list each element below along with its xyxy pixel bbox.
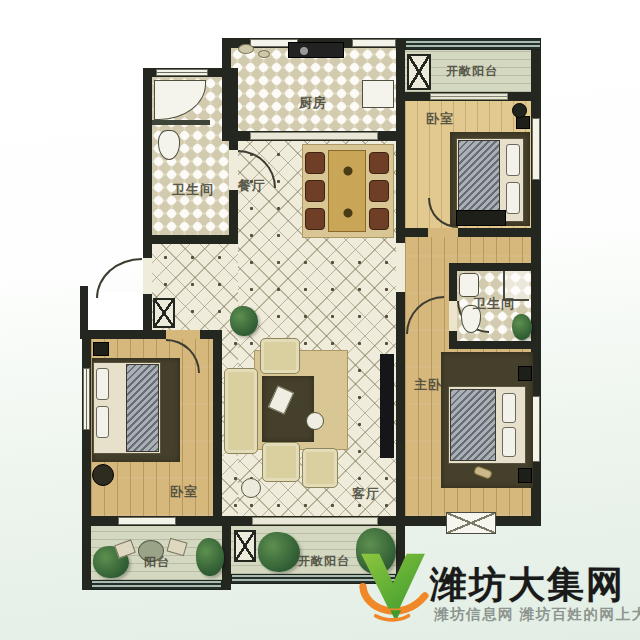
door-opening xyxy=(428,228,458,237)
sofa xyxy=(224,368,258,454)
kitchen-sliding-door xyxy=(250,132,378,140)
bed-duvet xyxy=(450,389,496,461)
label-kitchen: 厨房 xyxy=(299,94,327,112)
dining-chair xyxy=(369,180,389,202)
wall xyxy=(80,286,88,334)
dining-chair xyxy=(305,152,325,174)
wall xyxy=(213,330,222,516)
site-name: 潍坊大集网 xyxy=(430,560,625,610)
wardrobe xyxy=(456,210,506,226)
dining-chair xyxy=(369,152,389,174)
coffee-table-rug xyxy=(262,376,314,442)
entry-door-arc xyxy=(96,258,142,298)
dining-chair xyxy=(305,180,325,202)
window xyxy=(532,396,540,462)
window xyxy=(156,69,208,76)
kitchen-item xyxy=(258,50,270,58)
armchair xyxy=(302,448,338,488)
living-balcony-sliding-door xyxy=(252,517,378,525)
wall xyxy=(143,68,152,244)
wall xyxy=(396,38,405,243)
nightstand xyxy=(93,342,109,356)
dining-chair xyxy=(369,208,389,230)
armchair xyxy=(260,338,300,374)
label-open-balcony-top: 开敞阳台 xyxy=(446,63,498,80)
stove xyxy=(288,42,344,58)
window xyxy=(352,39,396,47)
pillow xyxy=(506,144,520,176)
floorplan-image: 厨房 开敞阳台 卧室 卫生间 餐厅 卫生间 主卧 卧室 客厅 阳台 开敞阳台 潍… xyxy=(0,0,640,640)
site-tagline: 潍坊信息网 潍坊百姓的网上大集 xyxy=(434,605,640,624)
wall xyxy=(222,38,231,141)
wall xyxy=(449,341,531,349)
shaft xyxy=(153,298,175,328)
label-bath-right: 卫生间 xyxy=(473,295,515,313)
wall xyxy=(80,330,222,339)
wall xyxy=(449,263,531,271)
nightstand xyxy=(518,468,532,483)
door-opening xyxy=(449,301,457,331)
shaft xyxy=(234,530,256,562)
balcony-railing xyxy=(91,580,222,590)
doorway-opening xyxy=(396,243,405,292)
label-bedroom-bottom-left: 卧室 xyxy=(170,483,198,501)
sink xyxy=(459,273,479,297)
pillow xyxy=(96,406,109,438)
label-bath-left: 卫生间 xyxy=(172,181,214,199)
window xyxy=(532,118,540,180)
wall xyxy=(449,331,457,341)
plant xyxy=(196,538,224,576)
bedroom-balcony-window xyxy=(118,517,176,525)
tv-cabinet xyxy=(380,354,394,458)
bed-duvet xyxy=(458,140,500,220)
site-logo xyxy=(352,552,434,634)
bath-partition xyxy=(152,120,210,125)
label-bedroom-top-right: 卧室 xyxy=(426,110,454,128)
entry-door-opening xyxy=(143,258,152,294)
fridge xyxy=(362,80,394,108)
shaft xyxy=(407,54,431,90)
wall xyxy=(143,244,152,258)
pillow xyxy=(502,427,516,457)
round-chair xyxy=(92,464,114,486)
wall xyxy=(143,294,152,334)
label-balcony: 阳台 xyxy=(144,554,170,571)
dining-table xyxy=(328,150,366,232)
wall xyxy=(449,263,457,301)
label-master-bedroom: 主卧 xyxy=(414,376,442,394)
label-dining: 餐厅 xyxy=(238,177,266,195)
balcony-railing xyxy=(405,38,541,50)
bay-window xyxy=(446,512,496,534)
window xyxy=(83,368,90,430)
label-open-balcony-bottom: 开敞阳台 xyxy=(298,553,350,570)
wall xyxy=(396,292,405,524)
door-opening xyxy=(166,330,200,339)
plant xyxy=(512,314,532,340)
lamp xyxy=(512,103,527,118)
kitchen-item xyxy=(238,44,254,54)
pillow xyxy=(96,368,109,400)
armchair xyxy=(262,442,300,482)
wall xyxy=(143,235,238,244)
plant xyxy=(258,532,300,572)
plant xyxy=(230,306,258,336)
wall xyxy=(405,228,531,237)
door-opening xyxy=(229,150,238,190)
nightstand xyxy=(518,366,532,381)
side-table xyxy=(241,478,261,498)
label-living: 客厅 xyxy=(352,485,380,503)
pillow xyxy=(502,393,516,423)
balcony-window-door xyxy=(430,93,508,100)
pillow xyxy=(506,182,520,214)
bed-duvet xyxy=(126,364,159,452)
coffee-table xyxy=(306,412,324,430)
dining-chair xyxy=(305,208,325,230)
